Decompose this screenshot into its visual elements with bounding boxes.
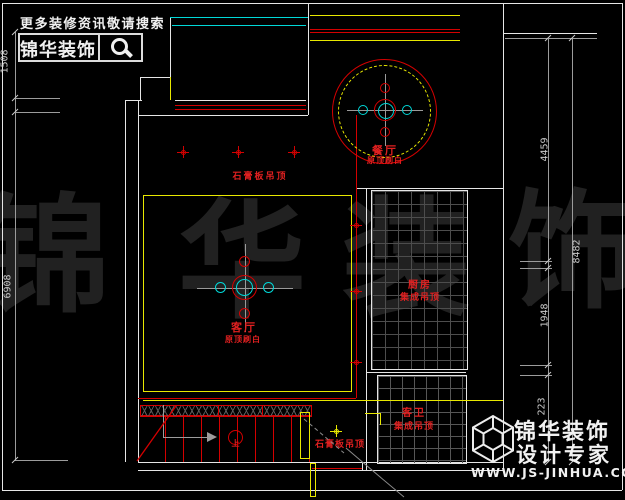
stair-arrow-shaft-v (163, 405, 164, 437)
balcony-left-yellow-edge (170, 77, 171, 100)
dim-stub (15, 112, 60, 113)
dining-lamp-sat-right (402, 105, 412, 115)
dim-stub (520, 375, 552, 376)
room-note-living: 原顶刷白 (225, 334, 261, 345)
stair-tread (255, 415, 256, 462)
lamp-dot (354, 360, 359, 365)
left-wall-inner (138, 100, 139, 462)
living-lamp-sat-left (215, 282, 226, 293)
lamp-dot (181, 150, 186, 155)
header-divider (98, 35, 100, 60)
stair-direction-label: 上 (232, 439, 240, 448)
right-wall (503, 3, 504, 470)
dim-stub (520, 268, 552, 269)
dim-stub (520, 365, 552, 366)
top-right-step-wall (503, 33, 597, 34)
dim-line-right-inner (548, 38, 549, 462)
entry-door-leaf (300, 412, 310, 459)
wall-step-v (140, 77, 141, 100)
stair-direction-circle: 上 (228, 430, 243, 445)
left-wall-outer (125, 100, 126, 462)
label-gypsum-ceiling-living: 石膏板吊顶 (232, 169, 287, 182)
lamp-dot (354, 223, 359, 228)
dining-ceiling-yellow-2 (310, 40, 460, 41)
spotlight-icon (350, 356, 362, 368)
room-label-living: 客厅 (231, 319, 257, 335)
balcony-sill-line (175, 100, 306, 101)
balcony-right-wall (308, 3, 309, 115)
stair-arrow-head (207, 432, 217, 442)
balcony-bottom-wall (138, 115, 308, 116)
label-gypsum-ceiling-entry: 石膏板吊顶 (315, 437, 365, 450)
stair-tread (273, 415, 274, 462)
bottom-wall-outer (138, 470, 503, 471)
entry-yellow-post (310, 463, 316, 497)
jinhua-cube-logo-icon (468, 412, 518, 466)
wall-step-h2 (125, 100, 142, 101)
dim-stub (15, 460, 68, 461)
watermark-char: 饰 (508, 188, 625, 316)
stair-tread (219, 415, 220, 462)
balcony-window-line-1 (170, 17, 308, 18)
wall-step-h (140, 77, 170, 78)
room-note-dining: 原顶刷白 (367, 155, 403, 166)
balcony-sill-red-1 (175, 105, 306, 106)
living-lamp-sat-bottom (239, 308, 250, 319)
dim-label-6908: 6908 (3, 267, 14, 307)
curtain-box-red-2 (310, 32, 460, 33)
spotlight-icon (350, 285, 362, 297)
lamp-dot (334, 429, 339, 434)
frame-top-line (2, 3, 622, 4)
dining-ceiling-yellow-1 (310, 15, 460, 16)
dim-label-8482: 8482 (572, 232, 583, 272)
balcony-left-wall (170, 17, 171, 77)
bath-door-yellow-v (380, 413, 381, 425)
room-label-kitchen: 厨房 (408, 276, 432, 291)
spotlight-icon (288, 146, 300, 158)
kitchen-top-wall (356, 188, 503, 189)
spotlight-icon (177, 146, 189, 158)
living-lamp-sat-top (239, 256, 250, 267)
header-brand-box: 锦华装饰 (18, 33, 143, 62)
dim-label-4459: 4459 (540, 130, 551, 170)
dining-lamp-sat-top (380, 83, 390, 93)
magnifier-handle-icon (123, 48, 133, 58)
lamp-dot (292, 150, 297, 155)
dim-label-1508: 1508 (0, 42, 11, 82)
footer-url: WWW.JS-JINHUA.COM (471, 465, 625, 480)
dim-stub (520, 261, 552, 262)
balcony-sill-red-2 (175, 109, 306, 110)
dining-lamp-inner (378, 103, 394, 119)
wardrobe-divider (262, 405, 263, 415)
entry-door-jamb (362, 462, 363, 470)
living-lamp-inner (236, 279, 253, 296)
dim-line-left (15, 32, 16, 460)
lamp-dot (236, 150, 241, 155)
header-brand: 锦华装饰 (20, 36, 96, 62)
stair-tread (201, 415, 202, 462)
stair-arrow-shaft-h (163, 437, 207, 438)
dining-lamp-sat-left (358, 105, 368, 115)
cad-ceiling-plan: 锦 华 装 饰 (0, 0, 625, 500)
stair-tread (183, 415, 184, 462)
stair-tread (291, 415, 292, 462)
room-note-bath: 集成吊顶 (394, 419, 434, 432)
room-label-bath: 客卫 (402, 404, 426, 419)
spotlight-icon-yellow (330, 425, 342, 437)
dining-lamp-sat-bottom (380, 127, 390, 137)
living-lamp-sat-right (263, 282, 274, 293)
wardrobe-band (140, 405, 312, 417)
spotlight-icon (350, 219, 362, 231)
stair-top-yellow-line (143, 400, 503, 401)
lamp-dot (354, 289, 359, 294)
dim-label-1948: 1948 (540, 296, 551, 336)
room-note-kitchen: 集成吊顶 (400, 290, 440, 303)
header-tagline: 更多装修资讯敬请搜索 (20, 13, 165, 32)
dim-stub (15, 98, 60, 99)
living-kitchen-wall (366, 188, 367, 470)
spotlight-icon (232, 146, 244, 158)
wardrobe-divider (218, 405, 219, 415)
balcony-window-line-2 (172, 25, 306, 26)
curtain-box-red-1 (310, 29, 460, 30)
dim-line-top-right (505, 38, 597, 39)
kitchen-bath-wall (366, 372, 466, 373)
watermark-char: 锦 (0, 192, 110, 320)
stair-tread (165, 415, 166, 462)
living-bottom-red-line (138, 398, 356, 399)
frame-right-line (622, 3, 623, 490)
bath-door-yellow-h (365, 413, 380, 414)
entry-red-line (312, 468, 362, 469)
